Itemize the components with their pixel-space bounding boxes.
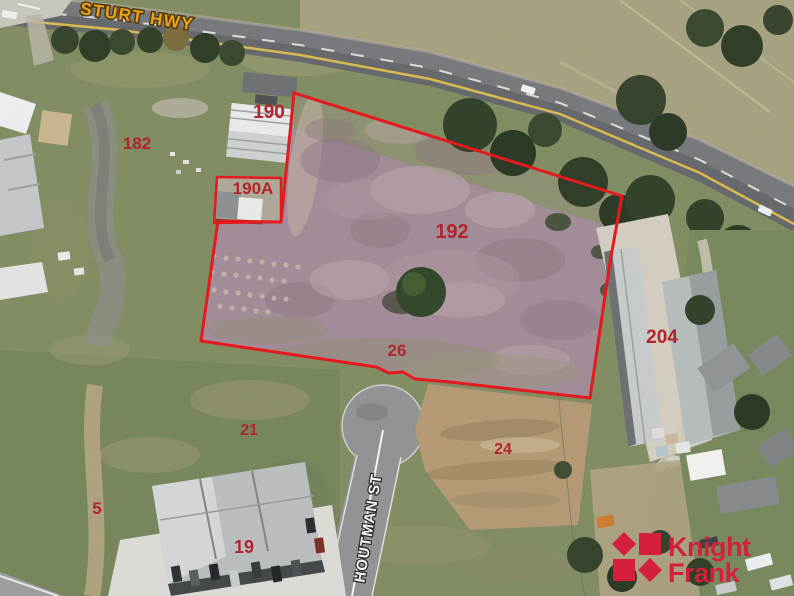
- lot-label-182: 182: [123, 134, 151, 153]
- lot-label-190a: 190A: [233, 179, 274, 198]
- photo-grain: [0, 0, 794, 596]
- lot-label-190: 190: [253, 102, 285, 123]
- lot-label-5: 5: [92, 499, 101, 518]
- aerial-map: 182 190 190A 192 26 21 24 204 5 19 STURT…: [0, 0, 794, 596]
- lot-label-24: 24: [494, 441, 512, 458]
- lot-label-26: 26: [388, 341, 407, 360]
- lot-label-204: 204: [646, 327, 678, 348]
- lot-label-192: 192: [435, 221, 468, 243]
- logo-text-line2: Frank: [668, 558, 741, 588]
- aerial-property-photo: 182 190 190A 192 26 21 24 204 5 19 STURT…: [0, 0, 794, 596]
- lot-label-21: 21: [240, 422, 258, 439]
- lot-label-19: 19: [234, 537, 254, 557]
